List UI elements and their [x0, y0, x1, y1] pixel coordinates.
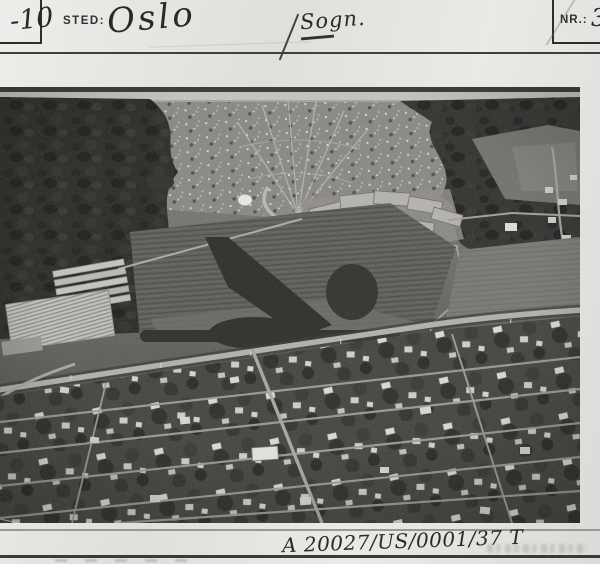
paper-smudge [55, 559, 205, 562]
archive-photo-card: -10 STED: Oslo Sogn. NR.: 3 [0, 0, 600, 564]
aerial-photograph-art [0, 87, 580, 523]
serial-number: -10 [8, 2, 54, 37]
faint-watermark [487, 544, 587, 553]
photo-overlays [0, 87, 580, 523]
footer-rule [0, 555, 600, 558]
place-field-value: Oslo [105, 0, 197, 42]
aerial-photograph [0, 87, 580, 523]
nr-field-value: 3 [591, 4, 600, 32]
header-rule [0, 52, 600, 54]
annotation-underline [301, 35, 334, 40]
place-annotation: Sogn. [299, 6, 366, 35]
place-field-label: STED: [63, 15, 105, 27]
